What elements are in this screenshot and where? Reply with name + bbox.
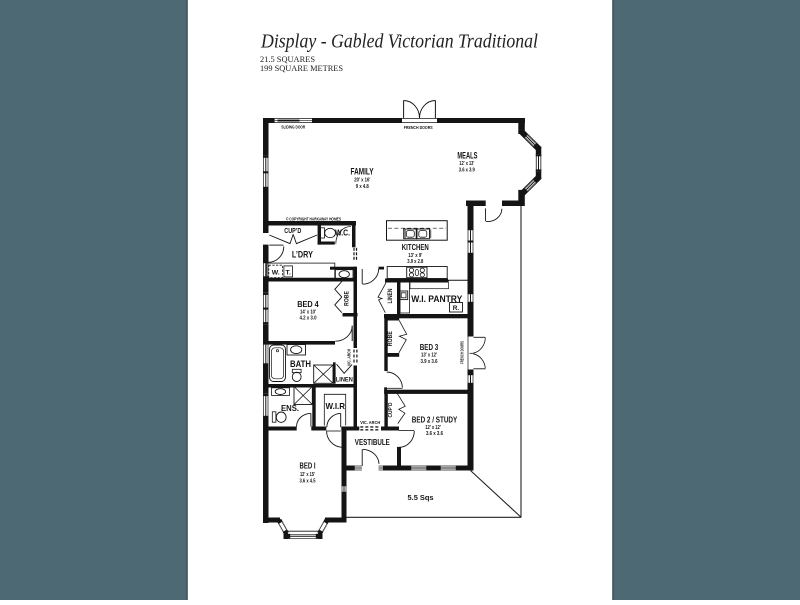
svg-text:12′ x 12′: 12′ x 12′ [425, 425, 441, 431]
svg-text:LINEN: LINEN [336, 378, 353, 384]
svg-text:BED 4: BED 4 [297, 300, 319, 309]
svg-text:W.: W. [272, 270, 280, 277]
svg-text:MEALS: MEALS [457, 151, 477, 161]
svg-text:FRENCH DOORS: FRENCH DOORS [404, 125, 434, 131]
svg-text:W.I. PANTRY: W.I. PANTRY [411, 294, 463, 305]
svg-text:3.6 x 4.5: 3.6 x 4.5 [300, 478, 316, 484]
svg-text:ROBE: ROBE [387, 331, 394, 346]
svg-text:FAMILY: FAMILY [351, 166, 374, 176]
svg-text:BED 3: BED 3 [420, 343, 439, 352]
svg-text:VIC. ARCH: VIC. ARCH [360, 420, 380, 426]
svg-text:L’DRY: L’DRY [292, 249, 313, 259]
svg-text:W.I.R: W.I.R [326, 401, 346, 411]
svg-text:T.: T. [286, 269, 291, 276]
svg-text:3.6 x 3.9: 3.6 x 3.9 [459, 167, 475, 173]
svg-text:199 SQUARE METRES: 199 SQUARE METRES [260, 64, 343, 73]
svg-text:CUP’D: CUP’D [388, 403, 394, 418]
svg-text:LINEN: LINEN [388, 289, 394, 304]
svg-text:20′ x 16′: 20′ x 16′ [354, 178, 371, 184]
svg-text:13′ x 9′: 13′ x 9′ [408, 253, 423, 259]
svg-text:ENS.: ENS. [281, 403, 299, 413]
svg-text:4.2 x 3.0: 4.2 x 3.0 [300, 316, 317, 322]
svg-text:FRENCH DOORS: FRENCH DOORS [460, 341, 465, 364]
svg-text:9 x 4.8: 9 x 4.8 [356, 184, 369, 190]
svg-text:© COPYRIGHT HARKAWAY HOMES: © COPYRIGHT HARKAWAY HOMES [286, 215, 341, 221]
svg-text:VIC. ARCH: VIC. ARCH [347, 349, 352, 366]
svg-text:BED 2 / STUDY: BED 2 / STUDY [412, 415, 458, 424]
svg-text:W.C.: W.C. [335, 228, 350, 237]
svg-text:SLIDING DOOR: SLIDING DOOR [281, 124, 305, 130]
svg-text:VESTIBULE: VESTIBULE [355, 438, 391, 447]
svg-text:3.9 x 2.8: 3.9 x 2.8 [407, 259, 423, 265]
svg-text:ROBE: ROBE [344, 291, 351, 306]
svg-text:BED I: BED I [300, 462, 316, 471]
svg-text:BATH: BATH [290, 359, 311, 369]
svg-text:12′ x 13′: 12′ x 13′ [459, 161, 475, 167]
svg-text:Display - Gabled Victorian Tra: Display - Gabled Victorian Traditional [260, 32, 538, 53]
svg-text:5.5 Sqs: 5.5 Sqs [408, 493, 434, 502]
svg-text:3.9 x 3.6: 3.9 x 3.6 [421, 359, 438, 365]
svg-text:CUP’D: CUP’D [284, 226, 301, 235]
svg-text:12′ x 15′: 12′ x 15′ [300, 472, 316, 478]
svg-text:KITCHEN: KITCHEN [402, 243, 429, 252]
svg-text:13′ x 12′: 13′ x 12′ [421, 353, 438, 359]
svg-text:14′ x 10′: 14′ x 10′ [300, 309, 317, 315]
svg-text:R.: R. [453, 305, 460, 312]
svg-text:3.6 x 3.6: 3.6 x 3.6 [426, 431, 443, 437]
svg-text:21.5 SQUARES: 21.5 SQUARES [260, 55, 315, 64]
